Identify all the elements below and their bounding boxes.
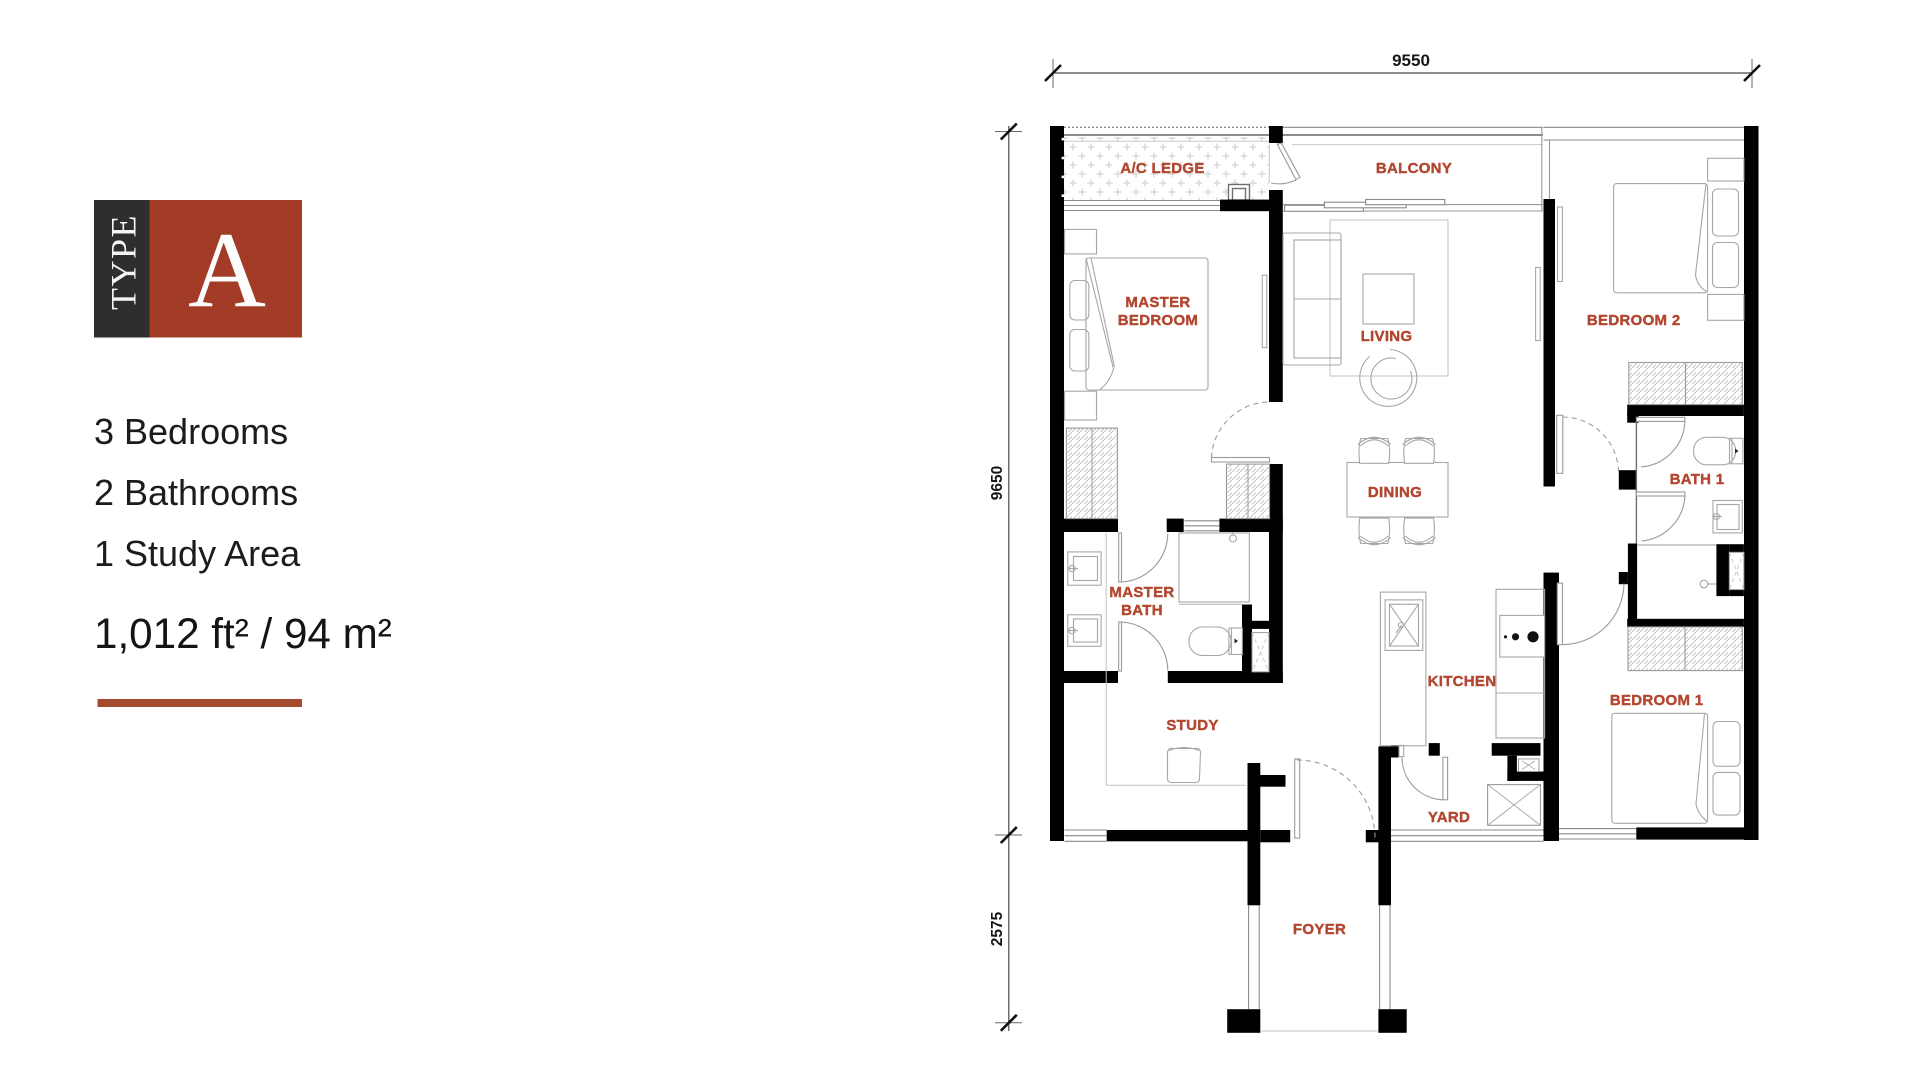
svg-text:STUDY: STUDY	[1166, 717, 1218, 734]
svg-text:3 Bedrooms: 3 Bedrooms	[94, 411, 288, 452]
svg-text:KITCHEN: KITCHEN	[1428, 673, 1497, 690]
svg-text:BATH 1: BATH 1	[1670, 471, 1725, 488]
svg-text:2575: 2575	[989, 911, 1006, 946]
svg-text:MASTER: MASTER	[1109, 584, 1174, 601]
svg-text:LIVING: LIVING	[1361, 328, 1413, 345]
svg-text:BALCONY: BALCONY	[1376, 160, 1452, 177]
svg-text:BEDROOM 1: BEDROOM 1	[1610, 692, 1704, 709]
svg-text:BEDROOM 2: BEDROOM 2	[1587, 312, 1681, 329]
svg-text:2 Bathrooms: 2 Bathrooms	[94, 472, 298, 513]
svg-text:FOYER: FOYER	[1293, 921, 1346, 938]
svg-text:MASTER: MASTER	[1125, 294, 1190, 311]
svg-text:1,012 ft² / 94 m²: 1,012 ft² / 94 m²	[94, 610, 392, 657]
svg-text:A: A	[188, 211, 266, 330]
svg-text:BATH: BATH	[1121, 602, 1163, 619]
svg-text:9550: 9550	[1392, 51, 1430, 70]
svg-text:1 Study Area: 1 Study Area	[94, 533, 301, 574]
svg-text:BEDROOM: BEDROOM	[1118, 312, 1198, 329]
svg-text:TYPE: TYPE	[104, 214, 144, 310]
svg-text:DINING: DINING	[1368, 484, 1422, 501]
svg-text:A/C LEDGE: A/C LEDGE	[1120, 160, 1204, 177]
svg-text:9650: 9650	[989, 466, 1006, 500]
svg-text:YARD: YARD	[1428, 809, 1470, 826]
